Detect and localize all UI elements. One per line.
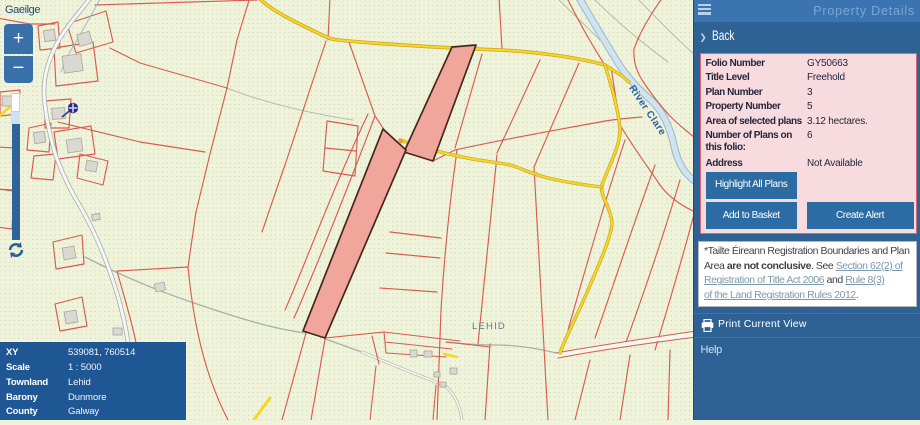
svg-text:LEHID: LEHID: [472, 321, 506, 332]
